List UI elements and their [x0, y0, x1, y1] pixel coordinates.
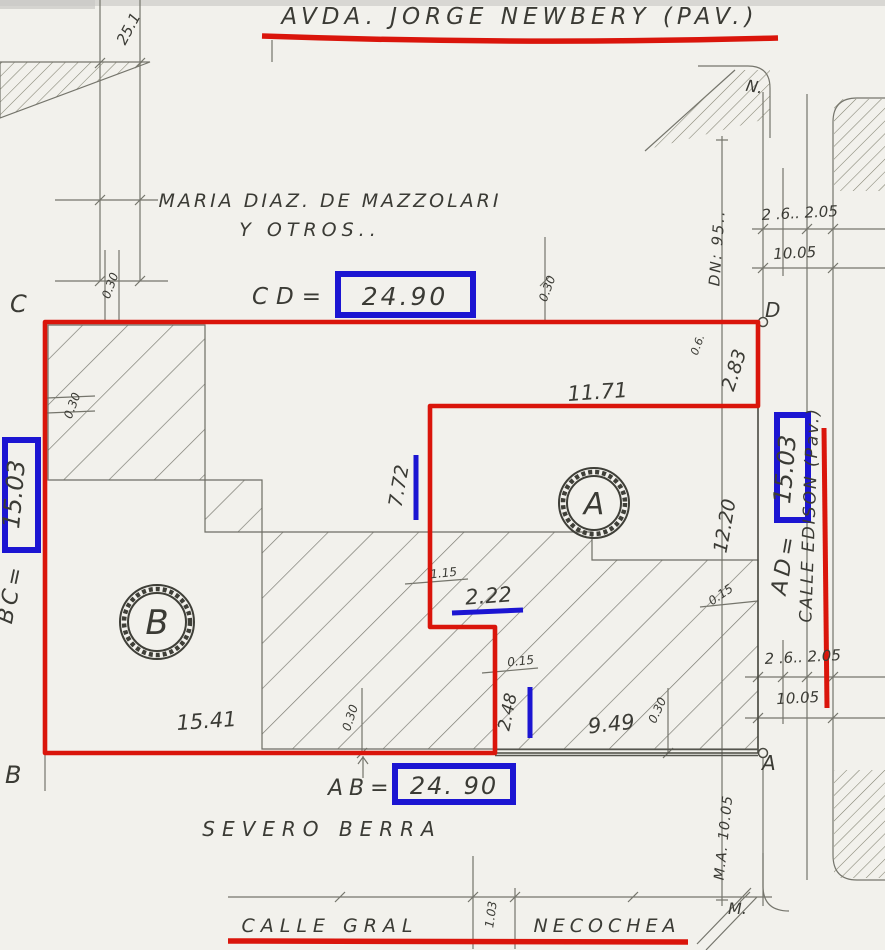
block-east-bottom-hatch	[834, 770, 885, 878]
bottom-street-red-underline	[228, 941, 688, 942]
neighbor-south-label: SEVERO BERRA	[202, 817, 441, 841]
corner-letter-d: D	[765, 298, 780, 322]
block-letter-m: M.	[728, 899, 747, 918]
neighbor-north-line2: Y OTROS..	[239, 219, 381, 241]
dim-115: 1.15	[430, 565, 458, 582]
corner-letter-a: A	[760, 751, 776, 775]
dim-cd-value: 24.90	[362, 282, 449, 311]
dim-ad-value: 15.03	[768, 434, 802, 505]
scanned-survey-plan: B A AVDA. JORGE NEWBERY (PAV.) MARIA DIA…	[0, 0, 885, 950]
dim-015-mid: 0.15	[507, 653, 535, 670]
street-bottom-label-right: NECOCHEA	[534, 915, 681, 937]
dim-1171: 11.71	[567, 378, 629, 406]
scan-edge-corner	[0, 0, 95, 9]
dim-cd-label: CD=	[252, 284, 329, 310]
neighbor-north-line1: MARIA DIAZ. DE MAZZOLARI	[158, 190, 501, 212]
right-street-red-line	[824, 428, 827, 708]
parcel-b-letter: B	[145, 603, 168, 643]
street-bottom-label-left: CALLE GRAL	[242, 915, 419, 937]
parcel-a-letter: A	[582, 487, 605, 522]
dim-right-mid-big: 10.05	[776, 688, 820, 708]
blue-underline-222	[452, 610, 523, 613]
block-letter-n: N.	[744, 76, 764, 98]
survey-plan-canvas: B A AVDA. JORGE NEWBERY (PAV.) MARIA DIA…	[0, 0, 885, 950]
dim-949: 9.49	[587, 710, 636, 739]
corner-letter-b: B	[5, 761, 21, 789]
corner-letter-c: C	[10, 290, 27, 318]
dim-ab-value: 24. 90	[410, 772, 498, 800]
street-top-label: AVDA. JORGE NEWBERY (PAV.)	[279, 4, 758, 30]
dim-ab-label: AB=	[326, 776, 395, 801]
dim-right-top-big: 10.05	[773, 243, 817, 263]
dim-222: 2.22	[464, 582, 512, 609]
dim-1541: 15.41	[176, 707, 238, 735]
block-east-top-hatch	[834, 99, 885, 191]
